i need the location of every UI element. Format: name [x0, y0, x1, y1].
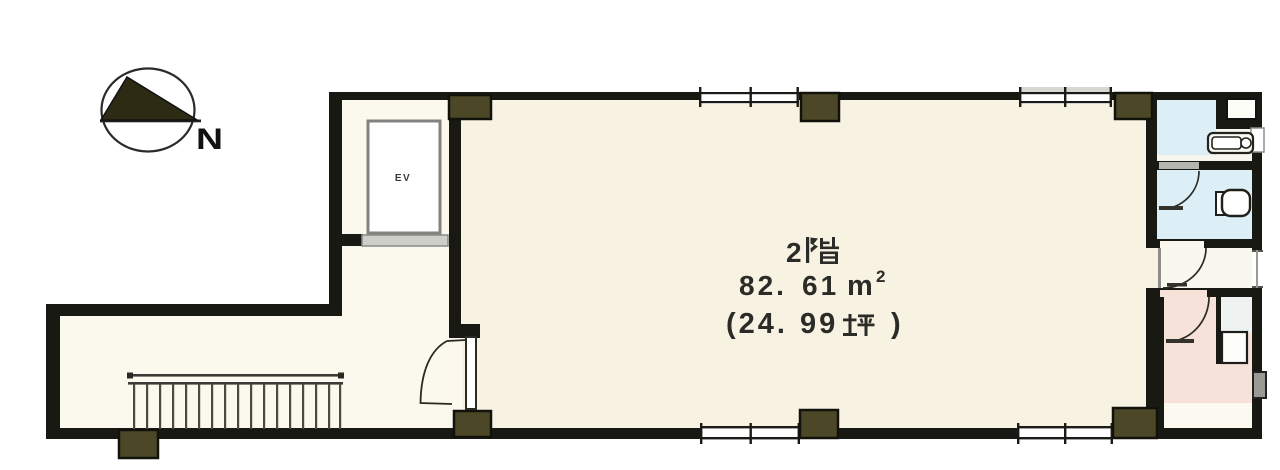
svg-text:(24.: (24. — [726, 308, 788, 340]
svg-text:m: m — [847, 270, 873, 302]
svg-text:99: 99 — [800, 308, 838, 340]
svg-text:2: 2 — [876, 267, 885, 286]
svg-text:61: 61 — [802, 270, 839, 301]
svg-text:2: 2 — [786, 237, 802, 268]
svg-text:EV: EV — [395, 173, 411, 184]
svg-text:): ) — [891, 308, 901, 340]
svg-text:82.: 82. — [739, 270, 787, 301]
svg-text:N: N — [196, 123, 223, 156]
